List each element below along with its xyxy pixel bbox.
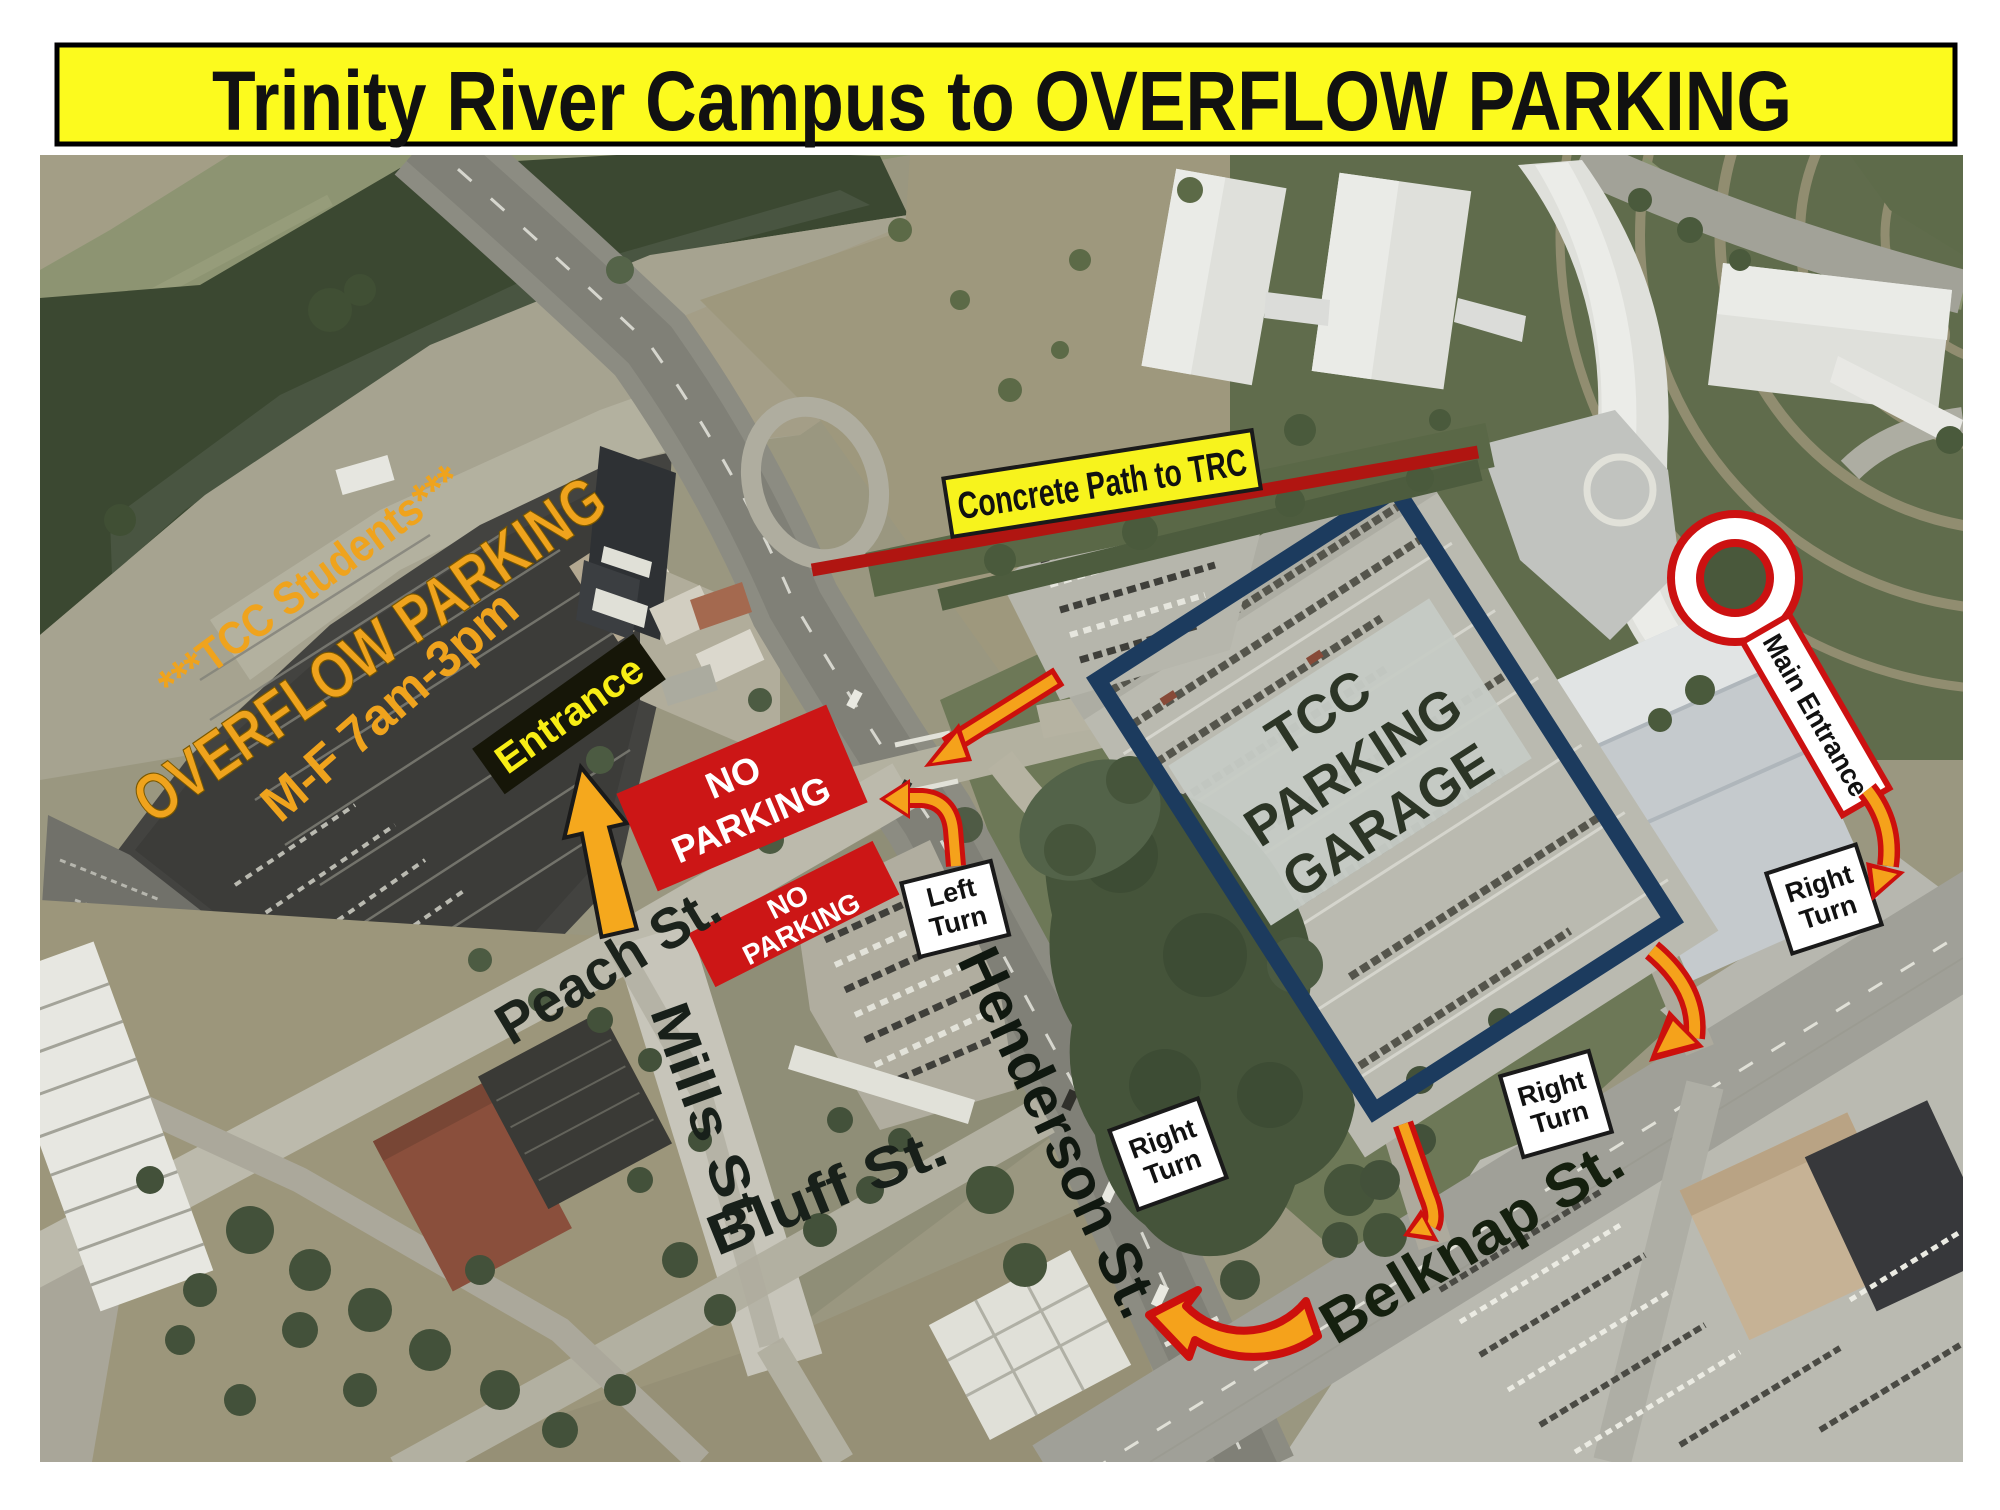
svg-text:Trinity River Campus to OVERFL: Trinity River Campus to OVERFLOW PARKING [212, 54, 1792, 148]
